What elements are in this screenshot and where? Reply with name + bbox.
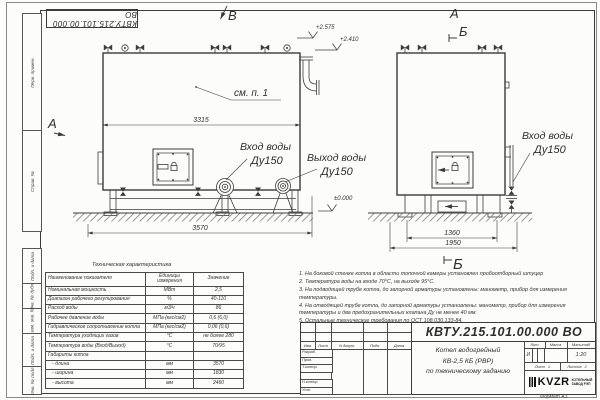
dim-1360: 1360 (444, 230, 460, 237)
tb-product-title-line: Котел водогрейный (412, 346, 524, 357)
tb-sign-col (363, 349, 388, 395)
spec-cell: МПа (кгс/см2) (146, 314, 194, 323)
spec-row: Номинальная мощностьМВт2,5 (46, 286, 244, 295)
spec-cell (146, 351, 194, 360)
spec-cell: Расход воды (46, 305, 146, 314)
tb-scale-value: 1:20 (567, 348, 595, 363)
spec-cell: Габариты котла (46, 351, 146, 360)
spec-cell: 3570 (194, 360, 244, 369)
spec-cell: - высота (46, 379, 146, 388)
spec-cell: 86 (194, 305, 244, 314)
spec-row: Габариты котла (46, 351, 244, 360)
spec-cell: 2460 (194, 379, 244, 388)
spec-cell: МВт (146, 286, 194, 295)
format-label: Формат А3 (540, 394, 567, 400)
front-inlet-dn: Ду150 (251, 155, 283, 167)
valve-icon (509, 187, 515, 195)
front-outlet-label: Выход воды (307, 152, 366, 164)
spec-row: Гидравлическое сопротивление котлаМПа (к… (46, 323, 244, 332)
view-b-arrow (221, 6, 228, 19)
ground-hatch (73, 213, 532, 222)
spec-cell: 40-110 (194, 295, 244, 304)
valve-icon (478, 45, 486, 54)
see-note-label: см. п. 1 (234, 88, 268, 99)
note-line: 3. На подводящей трубе котла, до запорно… (299, 287, 595, 302)
tb-sign-col (331, 349, 364, 395)
view-a-label-side: А (450, 6, 459, 21)
elevation-2575: +2.575 (316, 25, 335, 31)
tb-product-title: Котел водогрейный КВ-2,5 КБ (РВР) по тех… (411, 341, 524, 394)
spec-table-title: Техническая характеристика (92, 262, 171, 268)
spec-header-row: Наименование показателя Единицы измерени… (46, 273, 244, 287)
technical-notes: 1. На боковой стенке котла в области топ… (299, 271, 595, 326)
tb-doc-number: КВТУ.215.101.00.000 ВО (411, 323, 596, 342)
spec-row: - ширинамм1830 (46, 370, 244, 379)
spec-row: - высотамм2460 (46, 379, 244, 388)
view-a-arrow (54, 133, 65, 136)
spec-row: Расход водым3/ч86 (46, 305, 244, 314)
section-b-label-top: Б (459, 24, 467, 39)
valve-icon (401, 45, 409, 54)
tb-sheet-label: Лист (535, 364, 545, 369)
spec-row: Рабочее давление водыМПа (кгс/см2)0,6 (6… (46, 314, 244, 323)
valve-icon (136, 45, 144, 54)
spec-cell: - ширина (46, 370, 146, 379)
side-inlet-dn: Ду150 (534, 144, 566, 156)
tb-role-utv: Утв. (301, 387, 333, 396)
valve-icon (494, 45, 502, 54)
tb-product-title-line: КВ-2,5 КБ (РВР) (412, 357, 524, 368)
valve-icon (418, 45, 426, 54)
title-block: Изм. Лист N докум. Подп. Дата Разраб. Пр… (300, 322, 596, 395)
outlet-pipe (299, 57, 319, 95)
valve-icon (223, 45, 231, 54)
spec-cell: 0,06 (0,6) (194, 323, 244, 332)
front-inlet-label: Вход воды (240, 141, 291, 153)
spec-cell: м3/ч (146, 305, 194, 314)
spec-cell: мм (146, 370, 194, 379)
tb-product-title-line: по техническому заданию (412, 367, 524, 378)
note-line: 2. Температура воды на входе 70°С, на вы… (299, 279, 595, 287)
tb-sign-col (387, 349, 412, 395)
tb-sheets-value: 2 (585, 364, 587, 369)
spec-cell: 70/95 (194, 342, 244, 351)
tb-logo-cell: KVZR КОТЕЛЬНЫЙ ЗАВОД РЭП (524, 370, 596, 394)
view-a-label-front: А (48, 116, 57, 131)
tb-mass-value (544, 348, 568, 363)
spec-cell: не более 280 (194, 332, 244, 341)
spec-table: Наименование показателя Единицы измерени… (45, 272, 244, 389)
valve-icon (104, 45, 112, 54)
elevation-2410: +2.410 (340, 37, 359, 43)
spec-cell: Номинальная мощность (46, 286, 146, 295)
inlet-flange-icon (217, 179, 234, 196)
dim-3570: 3570 (192, 225, 208, 232)
spec-cell: Температура воды (Вход/Выход) (46, 342, 146, 351)
drain-valve-icon (120, 188, 126, 196)
spec-cell: 0,6 (6,0) (194, 314, 244, 323)
front-skid (104, 190, 302, 216)
spec-cell: - длина (46, 360, 146, 369)
kvzr-logo-sub2: ЗАВОД РЭП (572, 382, 593, 386)
side-inlet-pipe (505, 145, 517, 213)
tb-sheet-value: 1 (548, 364, 550, 369)
spec-cell: Диапазон рабочего регулирования (46, 295, 146, 304)
spec-cell: 1830 (194, 370, 244, 379)
front-outlet-dn: Ду150 (321, 166, 353, 178)
tb-sheets-label: Листов (567, 364, 581, 369)
kvzr-logo-icon (529, 377, 536, 387)
view-b-label: В (228, 8, 237, 23)
elevation-marks (297, 32, 342, 212)
spec-row: Температура уходящих газов°Сне более 280 (46, 332, 244, 341)
spec-row: Температура воды (Вход/Выход)°С70/95 (46, 342, 244, 351)
note-line: 4. На отводящей трубе котла, до запорной… (299, 303, 595, 318)
spec-header: Единицы измерения (146, 273, 194, 287)
spec-cell: Температура уходящих газов (46, 332, 146, 341)
dim-3315: 3315 (193, 117, 209, 124)
kvzr-logo-subtext: КОТЕЛЬНЫЙ ЗАВОД РЭП (572, 378, 593, 386)
spec-cell: % (146, 295, 194, 304)
spec-cell: 2,5 (194, 286, 244, 295)
kvzr-logo-text: KVZR (538, 376, 570, 388)
dim-1950: 1950 (445, 240, 461, 247)
valve-icon (509, 201, 515, 209)
spec-row: Диапазон рабочего регулирования%40-110 (46, 295, 244, 304)
drawing-sheet: Перв. примен. Справ. № Подп. и дата Инв.… (0, 0, 600, 400)
spec-cell: °С (146, 332, 194, 341)
spec-cell: Гидравлическое сопротивление котла (46, 323, 146, 332)
valve-icon (211, 45, 219, 54)
valve-icon (261, 45, 269, 54)
spec-header: Наименование показателя (46, 273, 146, 287)
spec-header: Значение (194, 273, 244, 287)
note-line: 1. На боковой стенке котла в области топ… (299, 271, 595, 279)
elevation-zero: ±0.000 (334, 196, 352, 202)
side-inlet-label: Вход воды (522, 130, 573, 142)
spec-cell: МПа (кгс/см2) (146, 323, 194, 332)
leader-side-inlet (513, 153, 530, 182)
spec-cell: °С (146, 342, 194, 351)
spec-cell (194, 351, 244, 360)
spec-cell: мм (146, 360, 194, 369)
spec-row: - длинамм3570 (46, 360, 244, 369)
spec-cell: Рабочее давление воды (46, 314, 146, 323)
spec-cell: мм (146, 379, 194, 388)
